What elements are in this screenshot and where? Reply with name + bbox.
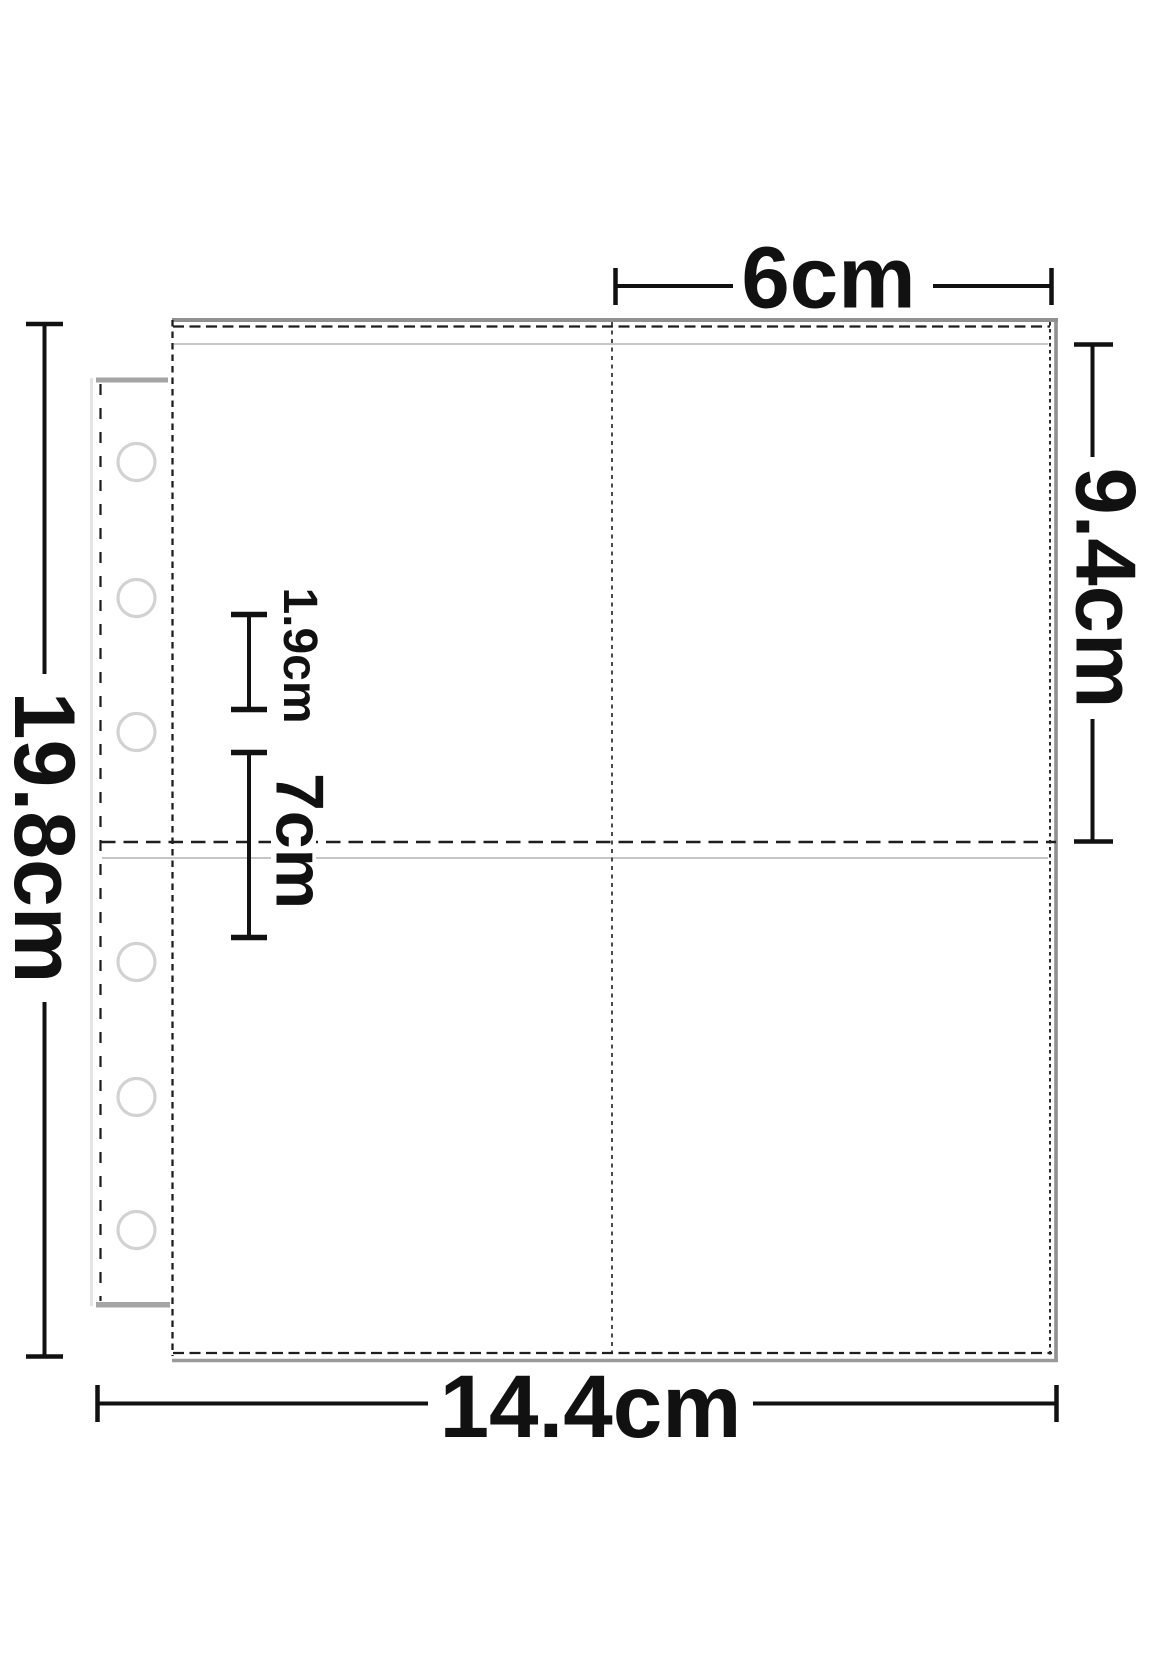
- svg-text:19.8cm: 19.8cm: [0, 692, 92, 984]
- svg-text:7cm: 7cm: [262, 773, 338, 909]
- svg-text:14.4cm: 14.4cm: [440, 1356, 742, 1456]
- svg-text:1.9cm: 1.9cm: [273, 587, 326, 723]
- svg-text:9.4cm: 9.4cm: [1058, 467, 1153, 708]
- svg-text:6cm: 6cm: [741, 230, 915, 327]
